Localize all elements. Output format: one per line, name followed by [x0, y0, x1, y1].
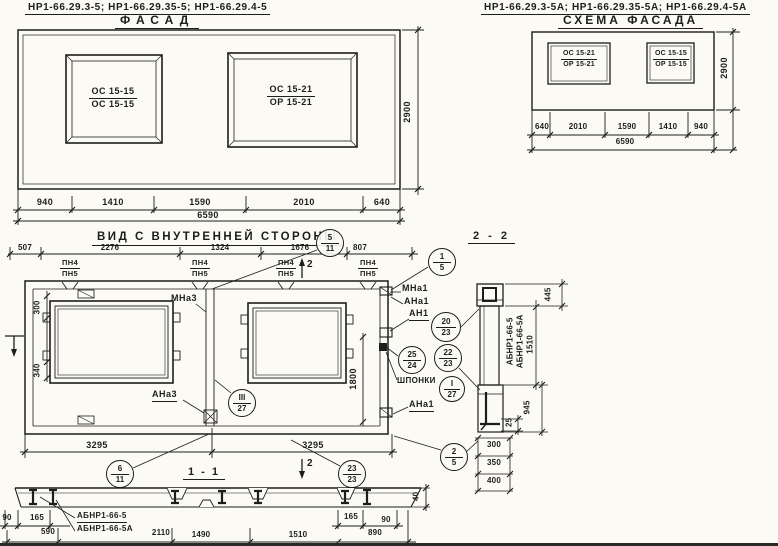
section-1-1-mark-b: АБНР1-66-5А: [77, 525, 133, 534]
facade-title: ФАСАД: [115, 14, 199, 29]
facade-dim-total: 6590: [188, 211, 228, 221]
balloon-20-23: 20 23: [431, 312, 461, 342]
facade-panel-linework: [18, 30, 400, 189]
schema-panel-linework: [532, 32, 714, 110]
s22-dim-25: 25: [506, 412, 515, 432]
label-ana1-bottom: АНа1: [409, 400, 434, 412]
window-mark-bottom: ОР 15-21: [563, 60, 595, 69]
s22-dim-400: 400: [479, 477, 509, 486]
pn5-label: ПН5: [360, 269, 376, 278]
s11-dim-90-left: 90: [0, 514, 14, 523]
window-mark-bottom: ОР 15-21: [270, 97, 313, 108]
window-mark-top: ОС 15-15: [89, 87, 136, 99]
window-mark-top: ОС 15-21: [267, 85, 314, 97]
balloon-22-23: 22 23: [434, 344, 462, 372]
pn5-label: ПН5: [62, 269, 78, 278]
s22-dim-350: 350: [479, 459, 509, 468]
label-ana3: АНа3: [152, 390, 177, 402]
inner-dim-507: 507: [11, 244, 39, 253]
window-mark-top: ОС 15-21: [561, 50, 597, 60]
balloon-bottom: 27: [233, 404, 251, 413]
pn5-label: ПН5: [192, 269, 208, 278]
pn4-label: ПН4: [276, 259, 296, 269]
pn4-label: ПН4: [190, 259, 210, 269]
balloon-bottom: 11: [321, 244, 339, 253]
balloon-top: 22: [439, 348, 457, 358]
s11-dim-590: 590: [35, 528, 61, 537]
section-marker-2-top: 2: [307, 259, 313, 270]
schema-dim-2010: 2010: [563, 123, 593, 132]
balloon-bottom: 24: [403, 361, 421, 370]
balloon-bottom: 5: [433, 263, 451, 272]
balloon-bottom: 23: [439, 359, 457, 368]
balloon-top: 6: [111, 464, 129, 474]
balloon-top: 23: [343, 464, 361, 474]
label-shponki: ШПОНКИ: [397, 377, 436, 386]
schema-dim-640: 640: [532, 123, 552, 132]
balloon-5-11: 5 11: [316, 229, 344, 257]
pn4-label: ПН4: [60, 259, 80, 269]
s11-dim-1490: 1490: [186, 531, 216, 540]
schema-dim-1410: 1410: [654, 123, 682, 132]
section-1-1-mark-a: АБНР1-66-5: [77, 512, 127, 523]
facade-dim-height: 2900: [403, 92, 413, 132]
pn-joint-label-3: ПН4 ПН5: [273, 259, 299, 279]
inner-dim-3295-right: 3295: [293, 441, 333, 451]
balloon-23-23: 23 23: [338, 460, 366, 488]
balloon-top: 1: [433, 252, 451, 262]
inner-dim-1800: 1800: [349, 359, 359, 399]
balloon-bottom: 23: [436, 328, 456, 337]
schema-dimension-lines: [527, 28, 740, 153]
schema-window-left-mark: ОС 15-21 ОР 15-21: [551, 50, 607, 68]
s22-dim-445: 445: [545, 279, 554, 309]
balloon-III-27: III 27: [228, 389, 256, 417]
balloon-top: I: [444, 379, 461, 389]
s22-mark-b: АБНР1-66-5А: [517, 309, 526, 373]
s11-dim-165-left: 165: [26, 514, 48, 523]
balloon-bottom: 23: [343, 475, 361, 484]
window-mark-bottom: ОР 15-15: [655, 60, 687, 69]
pn5-label: ПН5: [278, 269, 294, 278]
pn-joint-label-4: ПН4 ПН5: [355, 259, 381, 279]
facade-dim-1410: 1410: [96, 198, 130, 208]
balloon-I-27: I 27: [439, 376, 465, 402]
schema-window-right-mark: ОС 15-15 ОР 15-15: [649, 50, 693, 68]
label-ana1: АНа1: [404, 297, 429, 307]
balloon-2-5: 2 5: [440, 443, 468, 471]
s22-mark-a: АБНР1-66-5: [507, 311, 516, 371]
s22-dim-300: 300: [479, 441, 509, 450]
schema-dim-1590: 1590: [613, 123, 641, 132]
facade-dim-640: 640: [368, 198, 396, 208]
balloon-top: 2: [445, 447, 463, 457]
balloon-top: 20: [436, 317, 456, 327]
inner-dim-807: 807: [345, 244, 375, 253]
window-mark-bottom: ОС 15-15: [91, 99, 134, 110]
section-1-1-anchors: [29, 490, 371, 504]
inner-dim-300: 300: [34, 292, 43, 322]
s11-dim-40: 40: [413, 486, 422, 506]
balloon-top: III: [233, 393, 251, 403]
s11-dim-165-right: 165: [340, 513, 362, 522]
inner-dim-1324: 1324: [200, 244, 240, 253]
schema-dim-total: 6590: [608, 138, 642, 147]
balloon-bottom: 27: [444, 390, 461, 399]
facade-dim-2010: 2010: [287, 198, 321, 208]
pn-joint-label-1: ПН4 ПН5: [57, 259, 83, 279]
facade-dimension-lines: [13, 26, 424, 225]
label-mna3: МНа3: [171, 294, 197, 304]
inner-dim-2276: 2276: [90, 244, 130, 253]
balloon-top: 5: [321, 233, 339, 243]
balloon-bottom: 11: [111, 475, 129, 484]
s22-dim-1510: 1510: [527, 329, 536, 359]
label-mna1: МНа1: [402, 284, 428, 294]
s11-dim-1510: 1510: [283, 531, 313, 540]
facade-window-right-mark: ОС 15-21 ОР 15-21: [260, 85, 322, 108]
schema-dim-height: 2900: [720, 48, 730, 88]
balloon-6-11: 6 11: [106, 460, 134, 488]
window-mark-top: ОС 15-15: [653, 50, 689, 60]
s11-dim-2110: 2110: [147, 529, 175, 538]
inner-dim-1676: 1676: [280, 244, 320, 253]
balloon-1-5: 1 5: [428, 248, 456, 276]
section-marker-2-bottom: 2: [307, 458, 313, 469]
pn-joint-label-2: ПН4 ПН5: [187, 259, 213, 279]
label-an1: АН1: [409, 309, 429, 321]
s11-dim-90-right: 90: [377, 516, 395, 525]
inner-dim-3295-left: 3295: [77, 441, 117, 451]
facade-dim-940: 940: [31, 198, 59, 208]
balloon-25-24: 25 24: [398, 346, 426, 374]
inner-dim-340: 340: [34, 355, 43, 385]
facade-window-left-mark: ОС 15-15 ОС 15-15: [84, 87, 142, 110]
section-1-1-title: 1 - 1: [183, 466, 225, 480]
s11-dim-890: 890: [361, 529, 389, 538]
s22-dim-945: 945: [524, 392, 533, 422]
drawing-sheet: НР1-66.29.3-5; НР1-66.29.35-5; НР1-66.29…: [0, 0, 778, 546]
balloon-bottom: 5: [445, 458, 463, 467]
shponka-key-detail: [379, 343, 387, 351]
pn4-label: ПН4: [358, 259, 378, 269]
balloon-top: 25: [403, 350, 421, 360]
inner-view-panel-linework: [25, 281, 392, 434]
section-2-2-linework: [477, 284, 503, 432]
section-2-2-title: 2 - 2: [468, 230, 515, 244]
schema-dim-940: 940: [690, 123, 712, 132]
facade-dim-1590: 1590: [183, 198, 217, 208]
schema-title: СХЕМА ФАСАДА: [558, 14, 703, 29]
